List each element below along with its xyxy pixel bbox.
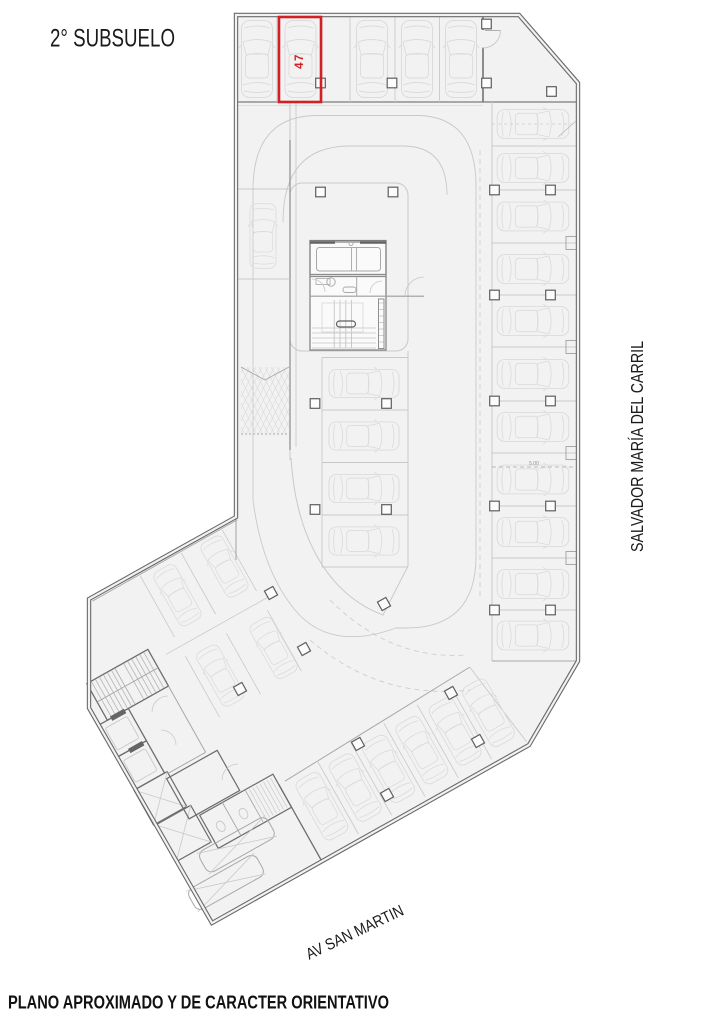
svg-text:SALVADOR MARÍA DEL CARRIL: SALVADOR MARÍA DEL CARRIL: [627, 341, 647, 552]
svg-text:AV SAN MARTIN: AV SAN MARTIN: [304, 902, 407, 963]
svg-text:2° SUBSUELO: 2° SUBSUELO: [50, 25, 175, 53]
svg-text:PLANO APROXIMADO Y DE CARACTER: PLANO APROXIMADO Y DE CARACTER ORIENTATI…: [8, 993, 389, 1013]
svg-text:5.00: 5.00: [529, 461, 539, 467]
svg-text:47: 47: [294, 53, 306, 69]
